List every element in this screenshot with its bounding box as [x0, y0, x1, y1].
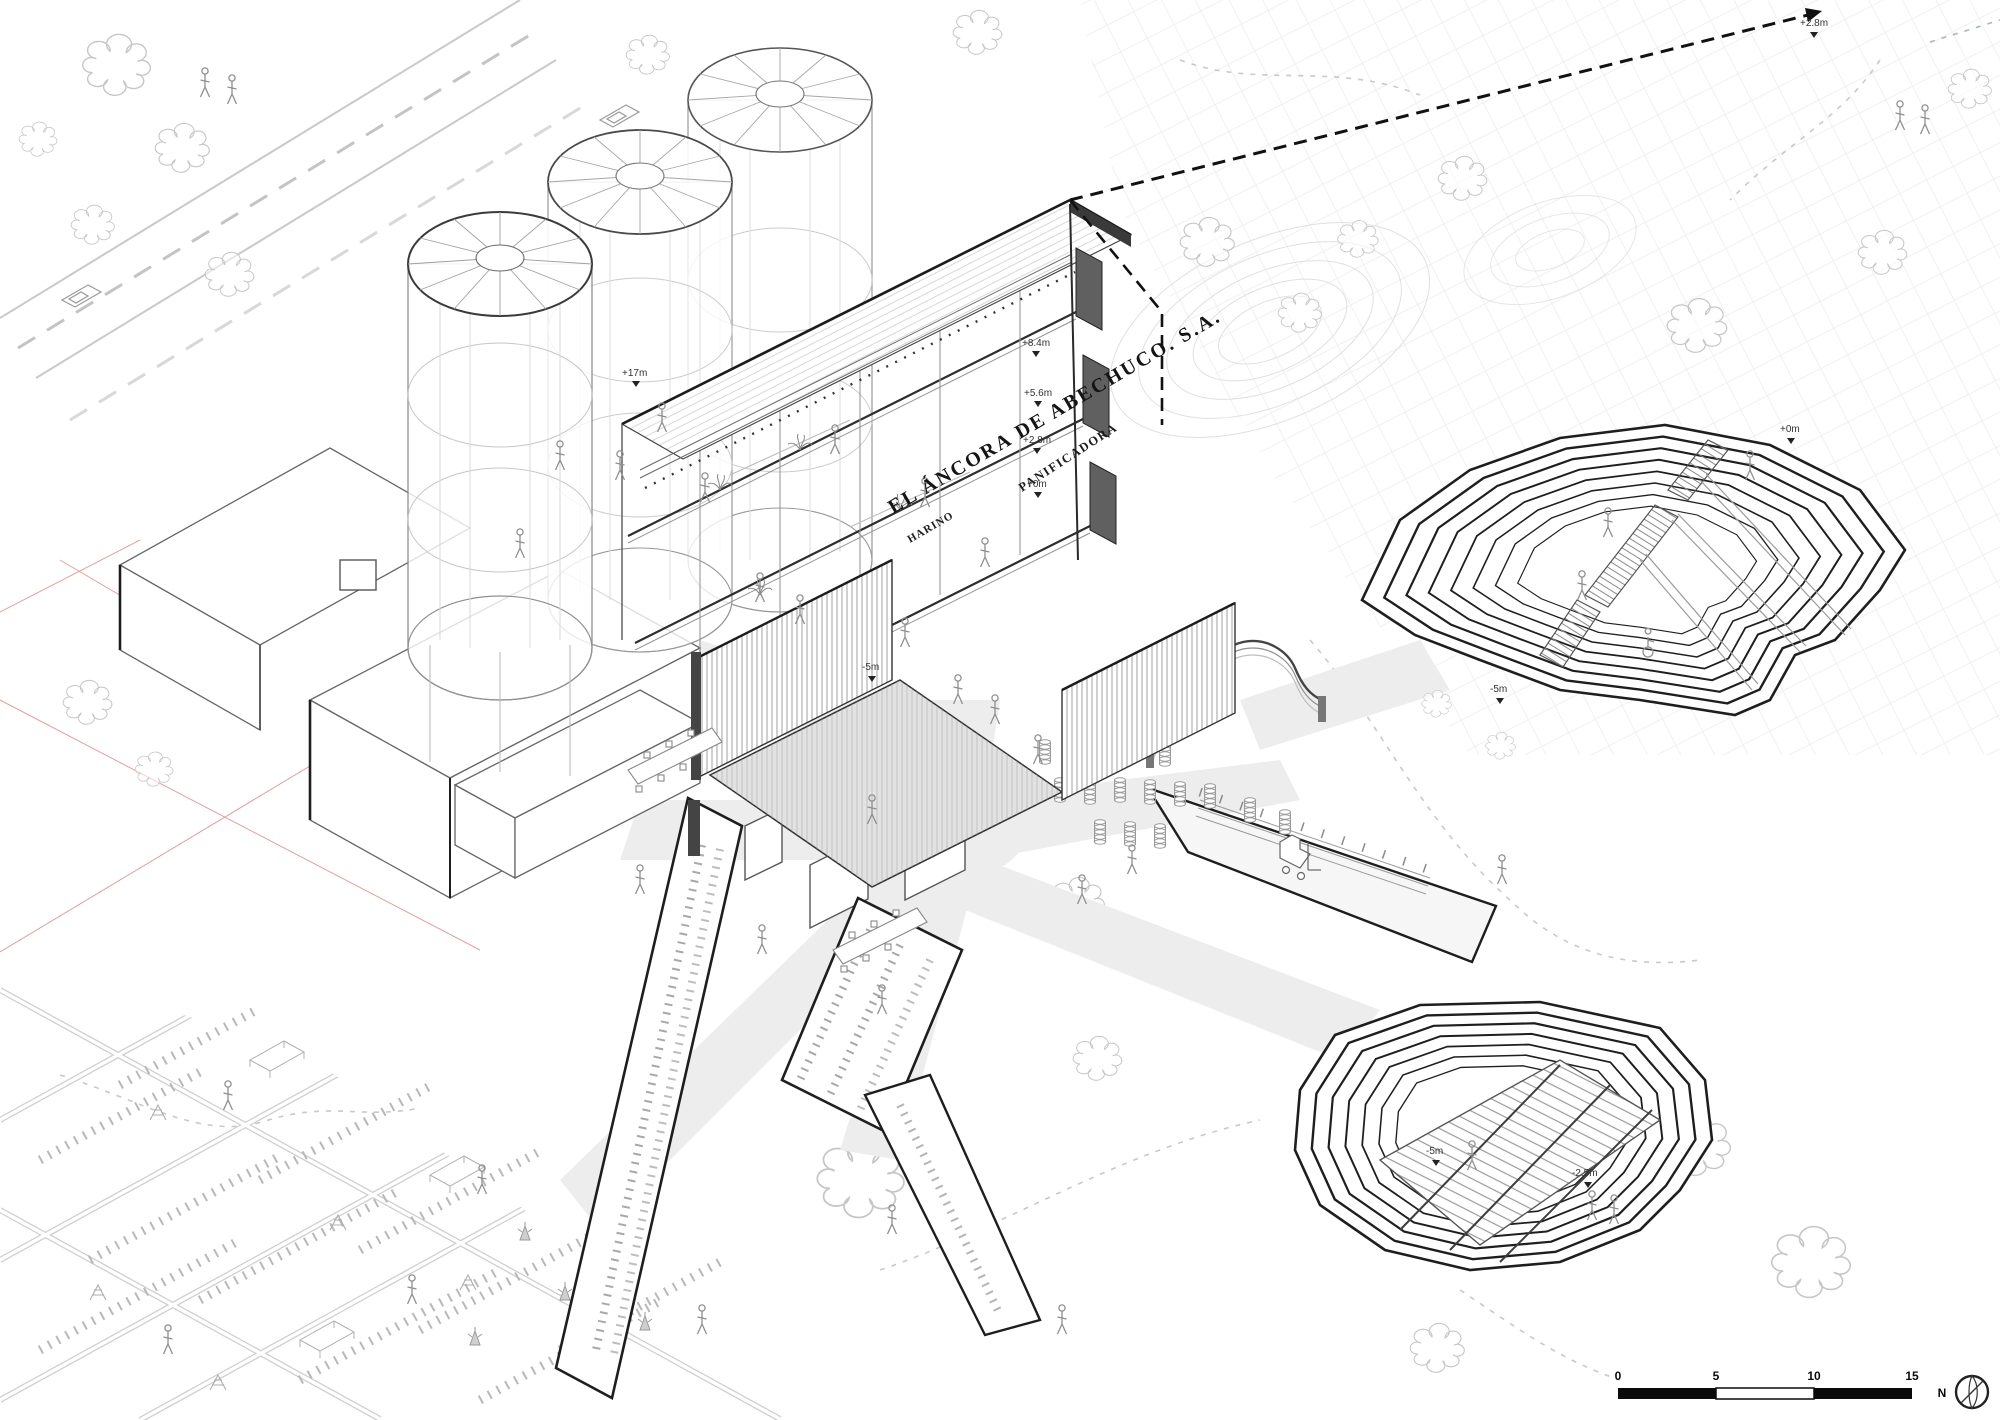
- svg-text:-5m: -5m: [862, 662, 879, 673]
- tree-icon: [626, 35, 669, 74]
- car-icon: [62, 285, 101, 307]
- scale-label: 10: [1807, 1369, 1821, 1383]
- svg-text:-2.5m: -2.5m: [1572, 1168, 1598, 1179]
- svg-text:+8.4m: +8.4m: [1022, 338, 1050, 349]
- tree-icon: [135, 752, 173, 786]
- tree-icon: [1073, 1036, 1122, 1080]
- level-marker-ground: +0m: [1027, 479, 1047, 498]
- crop-aframe-icon: [90, 1285, 106, 1300]
- scale-label: 0: [1615, 1369, 1622, 1383]
- labels: EL ÁNCORA DE ABECHUCO. S.A. PANIFICADORA…: [884, 304, 1225, 545]
- svg-text:-5m: -5m: [1490, 684, 1507, 695]
- scale-segment: [1716, 1388, 1814, 1399]
- svg-text:+2.8m: +2.8m: [1023, 435, 1051, 446]
- scale-segment: [1814, 1388, 1912, 1399]
- level-triangle-icon: [1033, 448, 1041, 454]
- person-icon: [698, 1305, 707, 1334]
- silo-annex-hut: [340, 560, 376, 590]
- scale-bar: 0 5 10 15: [1615, 1369, 1919, 1399]
- person-icon: [228, 75, 237, 104]
- amphitheater-landform: [1295, 1002, 1712, 1270]
- person-icon: [981, 538, 990, 567]
- tree-icon: [83, 34, 151, 95]
- level-triangle-icon: [1032, 351, 1040, 357]
- person-icon: [1058, 1305, 1067, 1334]
- level-marker-upper-ground: +2.8m: [1023, 435, 1051, 454]
- person-icon: [408, 1275, 417, 1304]
- tree-icon: [1772, 1227, 1850, 1298]
- person-icon: [224, 1081, 233, 1110]
- scale-label: 15: [1905, 1369, 1919, 1383]
- tree-icon: [71, 205, 114, 244]
- harino-label: HARINO: [906, 510, 956, 546]
- tree-icon: [205, 252, 254, 296]
- person-icon: [636, 865, 645, 894]
- scale-segment: [1618, 1388, 1716, 1399]
- wheat-sheaf-icon: [468, 1327, 482, 1345]
- building-title: EL ÁNCORA DE ABECHUCO. S.A.: [884, 304, 1225, 518]
- tree-icon: [953, 10, 1002, 54]
- person-icon: [1498, 855, 1507, 884]
- car-icon: [600, 105, 639, 127]
- person-icon: [954, 675, 963, 704]
- person-icon: [758, 925, 767, 954]
- level-marker-roof: +8.4m: [1022, 338, 1050, 357]
- person-icon: [901, 618, 910, 647]
- level-triangle-icon: [1034, 492, 1042, 498]
- axonometric-drawing: EL ÁNCORA DE ABECHUCO. S.A. PANIFICADORA…: [0, 0, 2000, 1420]
- scale-label: 5: [1713, 1369, 1720, 1383]
- tree-icon: [63, 680, 112, 724]
- svg-text:+0m: +0m: [1780, 424, 1800, 435]
- person-icon: [201, 68, 210, 97]
- person-icon: [1034, 735, 1043, 764]
- svg-text:+17m: +17m: [622, 368, 647, 379]
- svg-text:-5m: -5m: [1426, 1146, 1443, 1157]
- north-label: N: [1938, 1386, 1947, 1400]
- person-icon: [1128, 845, 1137, 874]
- architectural-axonometric-sheet: EL ÁNCORA DE ABECHUCO. S.A. PANIFICADORA…: [0, 0, 2000, 1420]
- pergola-icon: [250, 1041, 304, 1078]
- person-icon: [888, 1205, 897, 1234]
- north-compass: N: [1938, 1376, 1988, 1408]
- svg-text:+0m: +0m: [1027, 479, 1047, 490]
- wheat-sheaf-icon: [518, 1222, 532, 1240]
- person-icon: [164, 1325, 173, 1354]
- tree-icon: [155, 123, 209, 172]
- tree-icon: [1410, 1323, 1464, 1372]
- person-icon: [478, 1165, 487, 1194]
- svg-text:+2.8m: +2.8m: [1800, 18, 1828, 29]
- tree-icon: [19, 122, 57, 156]
- svg-text:+5.6m: +5.6m: [1024, 388, 1052, 399]
- forklift-yard: [1148, 788, 1496, 962]
